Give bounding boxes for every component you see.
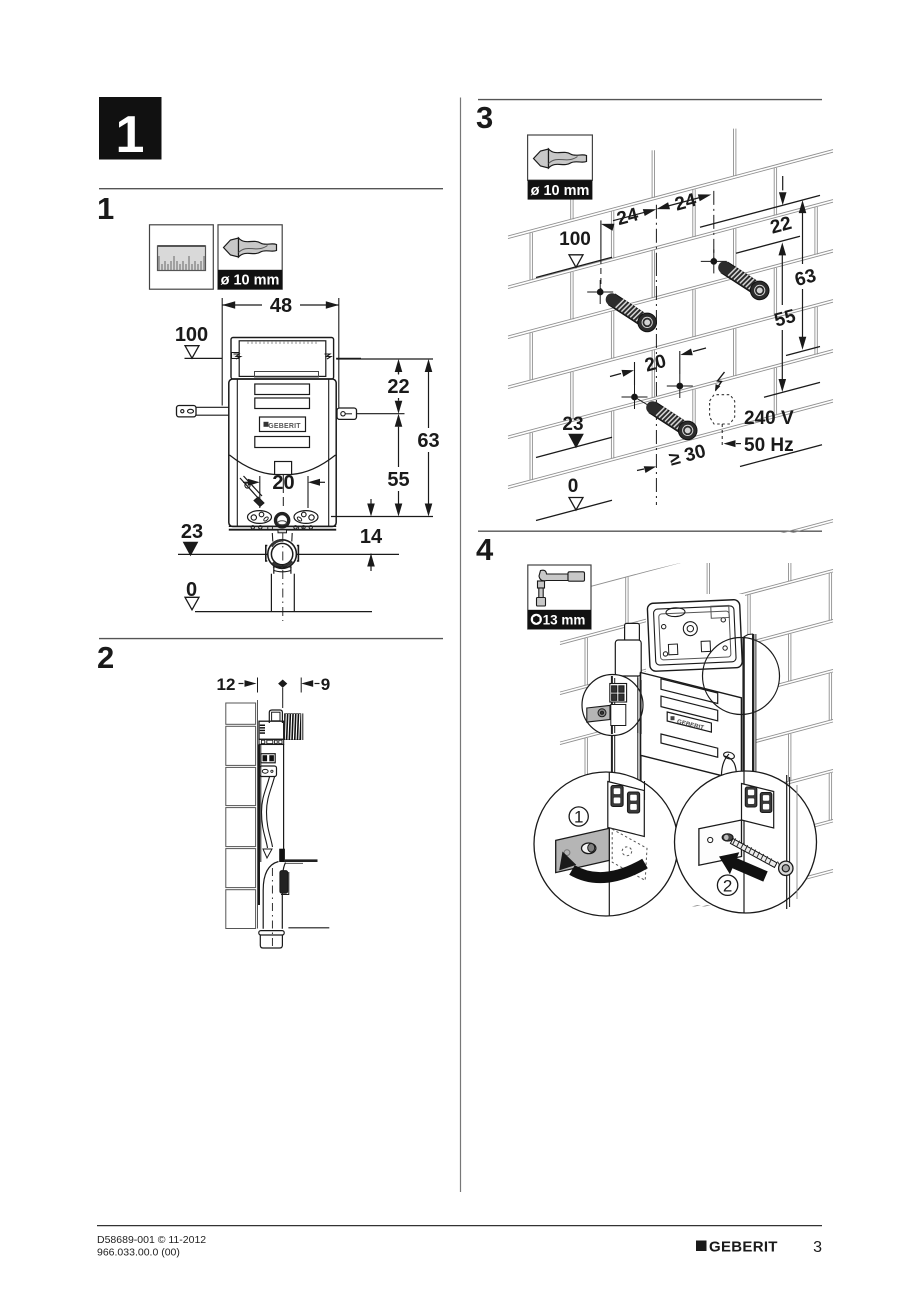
svg-text:23: 23 [181, 521, 203, 543]
svg-text:1: 1 [97, 191, 114, 226]
svg-text:ø 10 mm: ø 10 mm [531, 183, 590, 199]
svg-text:55: 55 [387, 469, 409, 491]
svg-text:2: 2 [723, 876, 732, 895]
svg-text:GEBERIT: GEBERIT [709, 1238, 778, 1255]
svg-text:13 mm: 13 mm [543, 613, 586, 628]
svg-text:GEBERIT: GEBERIT [268, 423, 301, 430]
svg-text:2: 2 [97, 640, 114, 675]
svg-text:240 V: 240 V [744, 408, 794, 429]
svg-text:63: 63 [417, 430, 439, 452]
svg-text:14: 14 [360, 526, 383, 548]
svg-text:23: 23 [562, 414, 583, 435]
svg-text:50 Hz: 50 Hz [744, 435, 794, 456]
svg-text:100: 100 [175, 324, 208, 346]
svg-text:9: 9 [321, 675, 330, 694]
svg-text:12: 12 [217, 675, 236, 694]
svg-text:966.033.00.0 (00): 966.033.00.0 (00) [97, 1247, 180, 1259]
svg-text:3: 3 [813, 1239, 822, 1256]
svg-text:0: 0 [568, 476, 579, 497]
svg-text:48: 48 [270, 295, 292, 317]
svg-text:D58689-001 © 11-2012: D58689-001 © 11-2012 [97, 1234, 206, 1246]
svg-text:ø 10 mm: ø 10 mm [221, 273, 280, 289]
svg-text:3: 3 [476, 100, 493, 135]
svg-text:1: 1 [574, 808, 583, 827]
svg-text:22: 22 [387, 376, 409, 398]
svg-text:4: 4 [476, 532, 494, 567]
svg-text:1: 1 [116, 106, 145, 164]
svg-text:100: 100 [559, 229, 591, 250]
